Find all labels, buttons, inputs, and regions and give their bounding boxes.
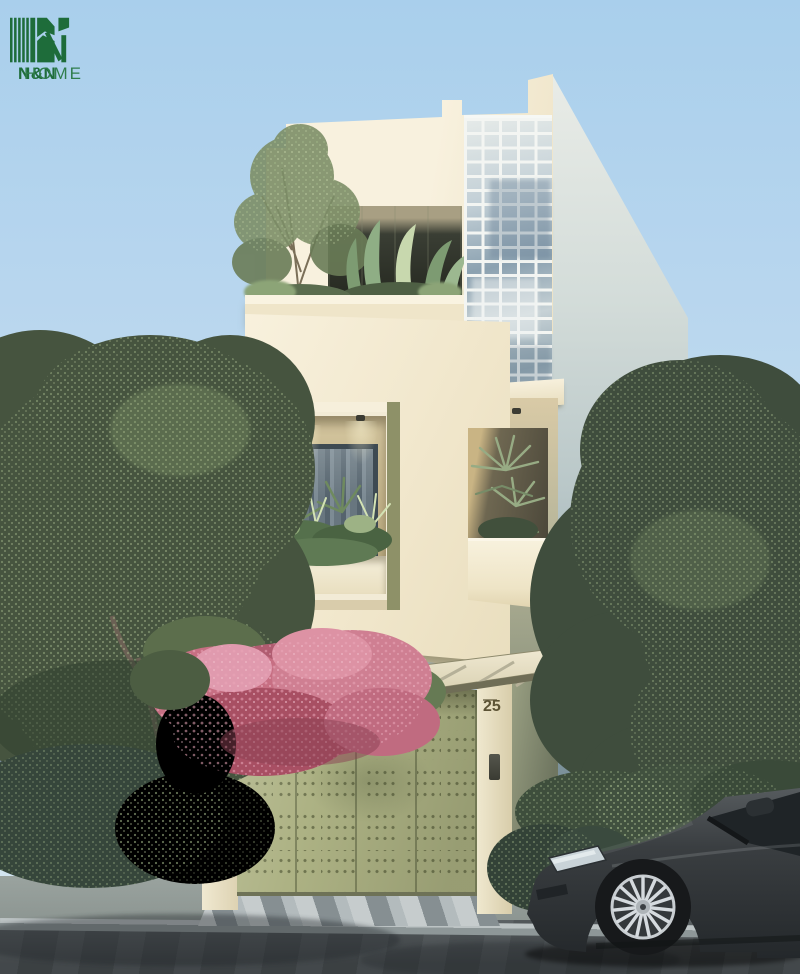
balcony-planter [468, 538, 556, 610]
window-planter-box [266, 556, 386, 594]
house-number: 25 [483, 698, 511, 732]
logo-suffix: HOME [24, 64, 83, 84]
downlight-glow [288, 425, 322, 469]
architectural-render: 25 [0, 0, 800, 974]
glass-tint-patch [490, 180, 550, 258]
wall-sconce-right [489, 754, 500, 780]
downlight [300, 419, 309, 425]
gate-pillar-left [202, 652, 238, 910]
perforated-gate [237, 690, 477, 896]
fence-return-wall [512, 676, 558, 892]
nn-home-logo: N&NHOME [10, 10, 230, 68]
recessed-terrace-opening [328, 206, 462, 306]
nn-home-logo-icon [10, 14, 72, 68]
wall-sconce-left [209, 762, 220, 788]
downlight [356, 415, 365, 421]
balcony-downlight [512, 408, 521, 414]
downlight-glow [344, 421, 378, 465]
neighbor-wall [0, 626, 138, 786]
neighbor-fence-band [0, 650, 138, 686]
